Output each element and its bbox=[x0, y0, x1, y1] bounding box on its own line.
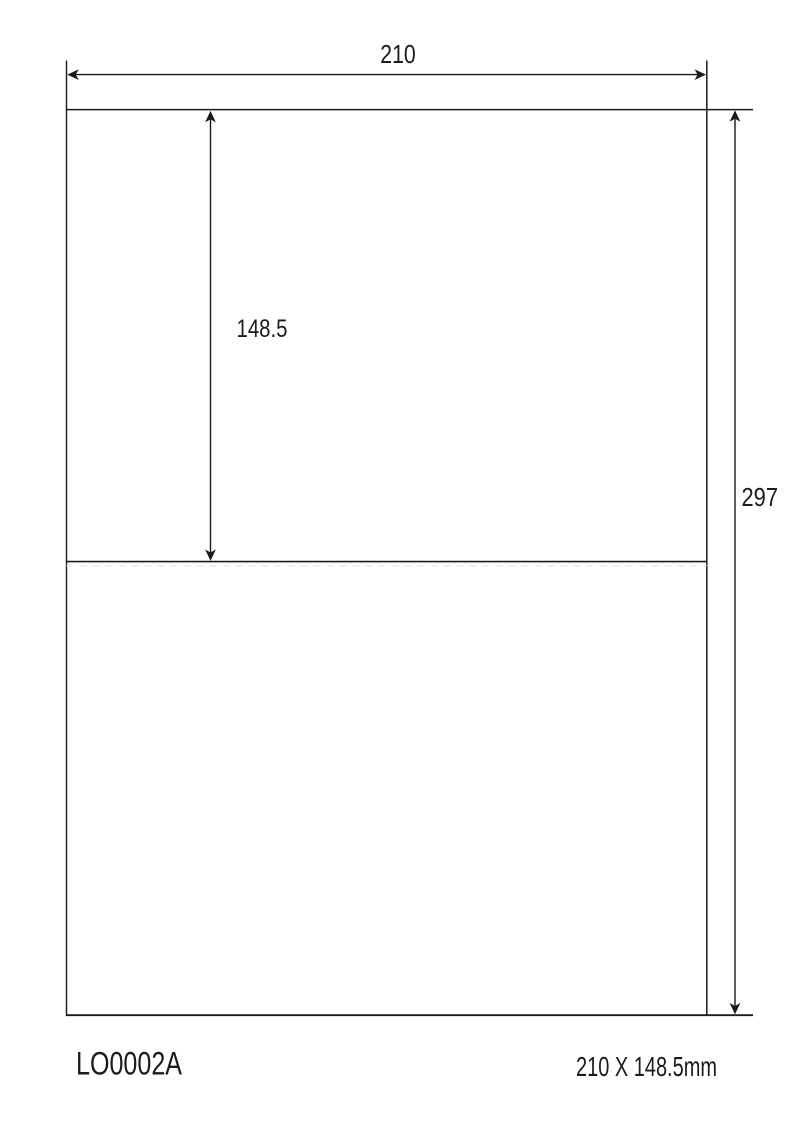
svg-text:LO0002A: LO0002A bbox=[76, 1046, 183, 1082]
svg-text:210 X 148.5mm: 210 X 148.5mm bbox=[576, 1051, 717, 1082]
svg-text:297: 297 bbox=[742, 482, 779, 512]
svg-text:148.5: 148.5 bbox=[237, 316, 288, 343]
svg-text:210: 210 bbox=[380, 41, 416, 69]
